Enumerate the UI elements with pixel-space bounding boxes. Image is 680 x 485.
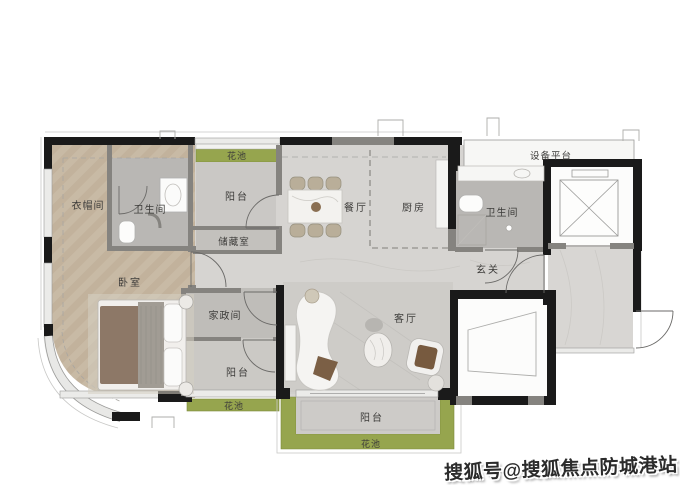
cloakroom-label: 衣帽间 xyxy=(72,199,105,212)
ball-stool xyxy=(428,375,444,391)
flower-top-label: 花池 xyxy=(227,150,247,161)
toilet2 xyxy=(459,195,483,212)
toilet1 xyxy=(119,221,135,243)
floorplan-drawing: 衣帽间 卫生间 花池 阳台 储藏室 卧室 餐厅 厨房 设备平台 卫生间 玄关 家… xyxy=(0,0,680,485)
bedroom-label: 卧室 xyxy=(118,276,142,289)
floorplan-page: 衣帽间 卫生间 花池 阳台 储藏室 卧室 餐厅 厨房 设备平台 卫生间 玄关 家… xyxy=(0,0,680,485)
bed xyxy=(88,294,194,396)
plant xyxy=(305,289,319,303)
living-label: 客厅 xyxy=(394,312,418,325)
balcony-left-floor xyxy=(185,338,281,392)
corridor-floor xyxy=(548,247,633,348)
balcony-left-label: 阳台 xyxy=(226,366,250,379)
balcony-top-label: 阳台 xyxy=(225,190,249,203)
corridor-door xyxy=(636,311,673,348)
side-table xyxy=(365,318,383,332)
coffee-table xyxy=(364,333,392,367)
elevator xyxy=(560,170,618,236)
flower-bottom-label: 花池 xyxy=(361,438,381,449)
kitchen-label: 厨房 xyxy=(402,201,426,214)
flower-left-label: 花池 xyxy=(224,400,244,411)
armchair xyxy=(405,337,445,377)
balcony-bottom-label: 阳台 xyxy=(360,411,384,424)
bathroom1-label: 卫生间 xyxy=(134,203,167,216)
bath2-counter xyxy=(458,166,544,181)
housekeeping-label: 家政间 xyxy=(209,309,242,322)
bathroom2-label: 卫生间 xyxy=(486,206,519,219)
stair-shaft-floor xyxy=(458,299,548,397)
dining-table xyxy=(288,177,342,237)
storage-label: 储藏室 xyxy=(218,236,250,248)
foyer-label: 玄关 xyxy=(476,263,500,276)
dining-label: 餐厅 xyxy=(344,201,368,214)
equipment-platform-label: 设备平台 xyxy=(530,150,572,162)
